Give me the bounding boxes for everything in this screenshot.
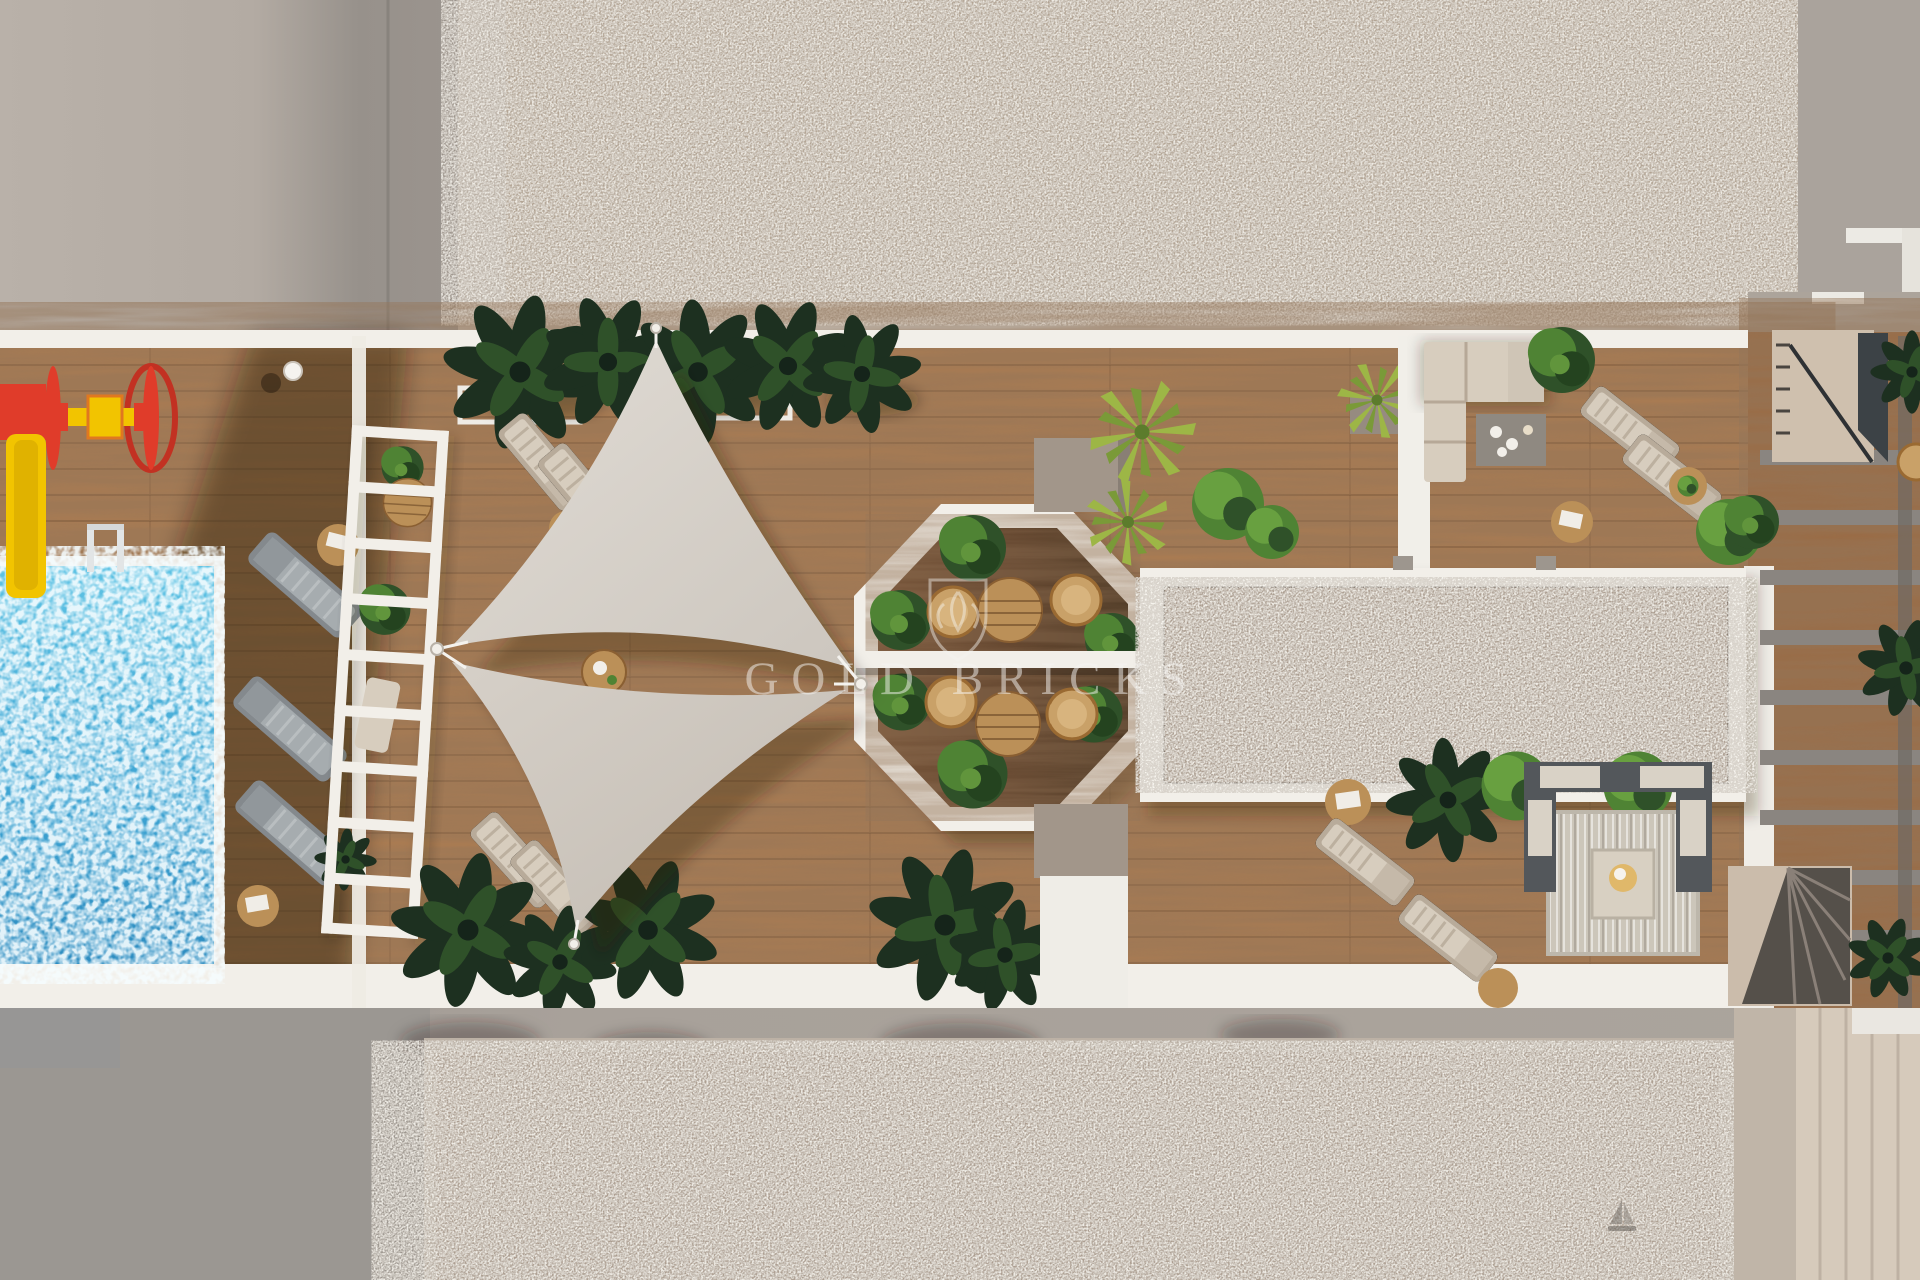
- upper-roof-concrete: [0, 0, 1920, 338]
- walkway-canopy-pad: [1034, 804, 1128, 878]
- watermark-text: GOLD BRICKS: [744, 653, 1199, 705]
- rooftop-terrace-render: GOLD BRICKS: [0, 0, 1920, 1280]
- coffee-table: [1476, 414, 1546, 466]
- kids-slide: [0, 384, 46, 598]
- gravel-roof-top: [506, 0, 1798, 310]
- round-side-table: [1325, 779, 1371, 825]
- walkway-path: [1040, 876, 1128, 1008]
- side-table: [237, 885, 279, 927]
- spiral-stairwell: [1728, 866, 1852, 1006]
- round-side-table: [1669, 467, 1707, 505]
- swimming-pool: [0, 566, 214, 964]
- round-side-table: [1478, 968, 1518, 1008]
- lounge-rug-set: [1524, 762, 1712, 954]
- render-canvas: GOLD BRICKS: [0, 0, 1920, 1280]
- gravel-roof-bottom: [424, 1038, 1734, 1280]
- stair-landing: [1772, 330, 1888, 462]
- lower-roof-concrete: [0, 1008, 1920, 1280]
- cream-paved-strip: [1796, 1008, 1920, 1280]
- coffee-table: [1592, 850, 1654, 918]
- round-side-table: [1551, 501, 1593, 543]
